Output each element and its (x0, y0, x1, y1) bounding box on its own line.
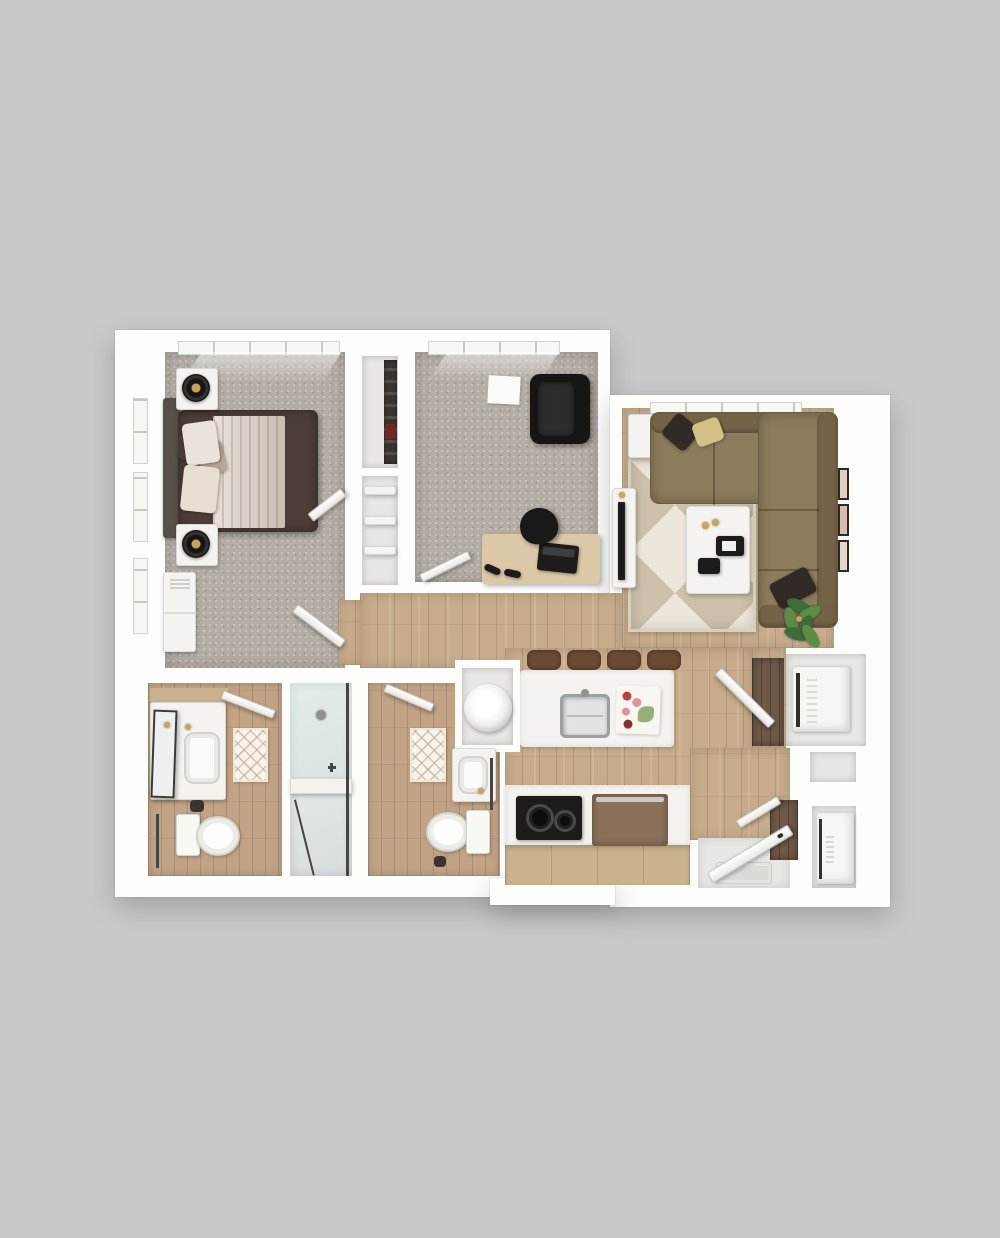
bath1-sink (184, 732, 220, 784)
floorplan-canvas (0, 0, 1000, 1238)
shower-valve-icon-2 (330, 763, 333, 772)
bedroom-window-left-1 (133, 398, 148, 464)
coffee-table-remote (698, 558, 720, 574)
table-lamp-top-icon (182, 374, 210, 402)
cooktop (516, 796, 582, 840)
hall-niche (810, 752, 856, 782)
tray-book (722, 541, 736, 551)
kitchen-cabinets (505, 845, 690, 885)
washer-door-slit (796, 673, 800, 727)
coffee-table-candle-1 (702, 522, 709, 529)
bar-stool-1 (527, 650, 561, 670)
bath1-vanity-backsplash (150, 688, 228, 702)
bar-stool-2 (567, 650, 601, 670)
closet-shelf-3 (364, 546, 396, 555)
laptop (537, 542, 580, 574)
bath2-faucet-icon (478, 788, 484, 794)
closet-shelf-2 (364, 516, 396, 525)
wall-art-frame-1 (838, 468, 849, 500)
burner-small-icon (554, 810, 576, 832)
range-oven (592, 794, 668, 846)
closet-shelf-1 (364, 486, 396, 495)
bed-pillow-white-1 (181, 420, 221, 466)
shower-upper-glass (290, 683, 352, 778)
shower-head-icon (316, 710, 326, 720)
office-window-top (428, 341, 560, 355)
coffee-table-candle-2 (712, 519, 719, 526)
burner-large-icon (526, 804, 554, 832)
bed-duvet (213, 416, 285, 528)
washer (792, 666, 850, 732)
bath2-towel-bar (490, 758, 493, 810)
bath1-faucet-icon-2 (185, 724, 191, 730)
entry-door-handle-icon (777, 833, 784, 840)
water-heater-vents (826, 835, 834, 863)
food-herb (638, 706, 655, 723)
bedroom-window-left-2 (133, 472, 148, 542)
bath2-mat (410, 728, 446, 782)
cutting-board (615, 685, 661, 735)
bath2-trash-bin (434, 856, 446, 867)
shower-glass-frame (346, 683, 349, 876)
potted-plant (774, 594, 826, 646)
food-item (622, 707, 630, 715)
bath2-sink (458, 756, 488, 794)
tv-console-decor (619, 492, 625, 498)
bath1-toilet-bowl (196, 816, 240, 856)
bedroom-doorway-floor (338, 600, 362, 665)
closet-hanging-clothes (384, 360, 397, 464)
dresser-seam (164, 612, 195, 614)
sink-divider (567, 715, 603, 717)
wall-art-frame-2 (838, 504, 849, 536)
office-floor-paper (487, 375, 520, 405)
closet-red-garment (385, 424, 396, 439)
laptop-screen (542, 546, 575, 557)
lounge-chair-cushion (538, 382, 574, 436)
lounge-chair (530, 374, 590, 444)
washer-dryer-top (464, 684, 512, 732)
shower-bench (290, 778, 352, 794)
bedroom-window-left-3 (133, 558, 148, 634)
bath1-faucet-icon (164, 722, 170, 728)
water-heater (816, 812, 854, 884)
table-lamp-bottom-icon (182, 530, 210, 558)
food-item (632, 698, 641, 707)
bath1-trash-bin (190, 800, 204, 812)
bed-pillow-white-2 (180, 464, 221, 514)
water-heater-slit (819, 819, 822, 879)
bar-stool-3 (607, 650, 641, 670)
plant-center (796, 616, 802, 622)
food-item (622, 691, 631, 700)
dresser-vent (170, 579, 190, 589)
bedroom-window-top (178, 341, 340, 355)
food-item (623, 720, 632, 729)
wall-art-frame-3 (838, 540, 849, 572)
bath1-towel-bar (156, 814, 159, 868)
sofa-seam (713, 433, 715, 505)
bedroom-dresser (163, 572, 196, 652)
sink-faucet-icon (581, 689, 589, 697)
bath2-toilet-bowl (426, 812, 470, 852)
bar-stool-4 (647, 650, 681, 670)
sofa-seam (759, 569, 819, 571)
bath1-mat (233, 728, 268, 782)
bath2-toilet-tank (466, 810, 490, 854)
island-sink (560, 694, 610, 738)
tv (618, 502, 625, 580)
range-handle (596, 797, 664, 802)
coffee-table-tray (716, 536, 744, 556)
sofa-seam (759, 509, 819, 511)
washer-vents (807, 677, 817, 723)
